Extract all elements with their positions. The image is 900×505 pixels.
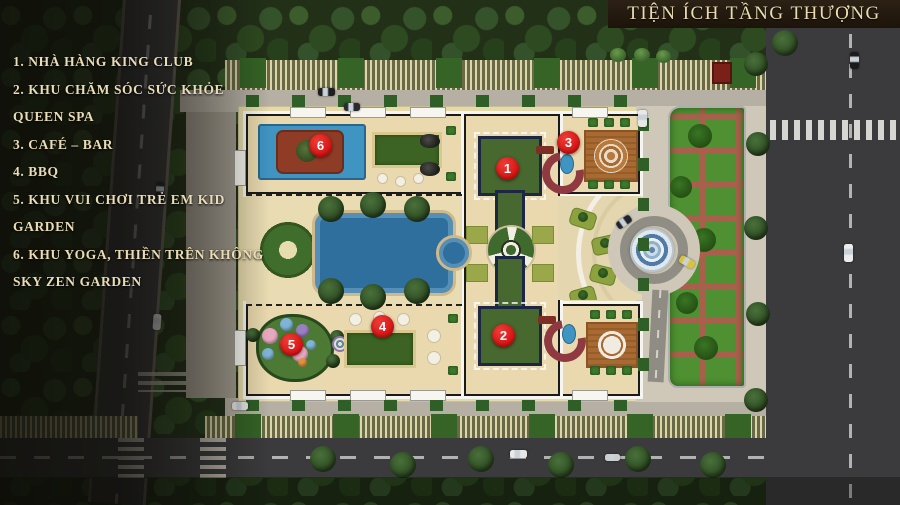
car-icon [344,103,360,111]
bush-row [246,95,636,107]
wood-deck-north [584,130,638,182]
plan-marker-1: 1 [496,157,519,180]
legend-line: GARDEN [13,220,243,234]
table-icon [350,314,361,325]
tree-icon [360,284,386,310]
bush-icon [620,118,630,127]
bush-row [638,118,649,390]
bush-icon [604,180,614,189]
bush-icon [606,310,616,319]
car-icon [510,450,527,458]
tree-icon [318,196,344,222]
table-icon [396,177,405,186]
tree-icon [676,292,698,314]
tree-icon [326,354,340,368]
bush-icon [588,180,598,189]
bush-icon [622,310,632,319]
tree-icon [744,388,768,412]
deck-ornament [594,139,628,173]
bush-icon [446,126,456,135]
plan-marker-5: 5 [280,333,303,356]
play-circle [298,358,307,367]
bush-icon [588,118,598,127]
tree-icon [404,196,430,222]
entrance-sign [712,62,732,84]
fountain [630,228,674,272]
bush-icon [448,314,458,323]
bush-icon [590,366,600,375]
plan-marker-2: 2 [492,324,515,347]
bush-icon [606,366,616,375]
table-icon [428,330,440,342]
table-icon [428,352,440,364]
bush-icon [610,48,626,62]
deck-ornament [597,330,627,360]
main-pool-apse [436,235,472,271]
tree-icon [390,452,416,478]
driveway [648,290,669,383]
bush-row [246,400,636,411]
tree-icon [548,452,574,478]
bush-icon [622,366,632,375]
balcony [410,107,446,118]
bush-icon [656,50,671,63]
tree-icon [746,302,770,326]
tree-icon [360,192,386,218]
tree-icon [404,278,430,304]
queen-spa-water-channel [495,256,525,312]
cafe-pond [560,154,574,174]
car-icon [638,110,647,127]
tree-icon [772,30,798,56]
car-icon [318,88,335,96]
cafe-pond [562,324,576,344]
rooftop-amenities-plan: 1. NHÀ HÀNG KING CLUB 2. KHU CHĂM SÓC SỨ… [0,0,900,505]
legend-line: QUEEN SPA [13,110,243,124]
legend-line: SKY ZEN GARDEN [13,275,243,289]
bush-icon [620,180,630,189]
cafe-bar-counter [536,146,554,154]
bush-icon [604,118,614,127]
planter [466,264,488,282]
planter [532,226,554,244]
tree-icon [670,176,692,198]
page-title: TIỆN ÍCH TẦNG THƯỢNG [608,0,900,28]
palm-icon [598,268,608,278]
legend-line: 6. KHU YOGA, THIỀN TRÊN KHÔNG [13,248,243,262]
table-icon [398,314,409,325]
bush-icon [446,172,456,181]
legend-line: 1. NHÀ HÀNG KING CLUB [13,55,243,69]
planter [532,264,554,282]
plan-marker-4: 4 [371,315,394,338]
palm-icon [578,290,588,300]
tree-icon [746,132,770,156]
palm-icon [578,212,588,222]
bush-icon [590,310,600,319]
tree-icon [468,446,494,472]
balcony [290,107,326,118]
tree-icon [744,216,768,240]
table-icon [378,174,387,183]
car-icon [850,52,859,69]
tree-icon [694,336,718,360]
tree-icon [318,278,344,304]
legend-line: 2. KHU CHĂM SÓC SỨC KHỎE [13,83,243,97]
car-icon [605,454,620,461]
tree-icon [688,124,712,148]
bush-icon [448,366,458,375]
legend-line: 3. CAFÉ – BAR [13,138,243,152]
plan-marker-3: 3 [557,131,580,154]
legend-line: 5. KHU VUI CHƠI TRẺ EM KID [13,193,243,207]
balcony [572,107,608,118]
plan-marker-6: 6 [309,134,332,157]
tree-icon [625,446,651,472]
tree-icon [744,52,768,76]
play-circle [280,318,293,331]
table-icon [414,174,423,183]
bush-icon [634,48,650,62]
legend: 1. NHÀ HÀNG KING CLUB 2. KHU CHĂM SÓC SỨ… [13,55,243,303]
tree-icon [700,452,726,478]
tree-icon [310,446,336,472]
planter [466,226,488,244]
rock-garden [420,162,440,176]
play-circle [306,340,316,350]
wood-deck-south [586,322,638,368]
car-icon [844,244,853,262]
rock-garden [420,134,440,148]
legend-line: 4. BBQ [13,165,243,179]
